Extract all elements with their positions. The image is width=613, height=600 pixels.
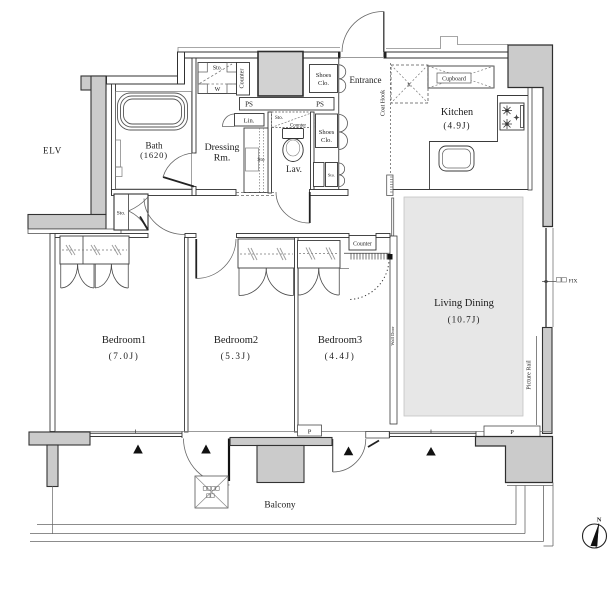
svg-text:Picture Rail: Picture Rail	[526, 360, 533, 390]
svg-text:P: P	[308, 429, 312, 436]
svg-text:(4.9J): (4.9J)	[443, 121, 470, 131]
svg-text:Lin.: Lin.	[244, 118, 255, 125]
svg-text:Coat Hook: Coat Hook	[381, 90, 387, 116]
svg-text:Wall Door: Wall Door	[390, 326, 395, 346]
svg-text:Bedroom2: Bedroom2	[214, 335, 258, 346]
svg-text:Sto: Sto	[257, 157, 264, 163]
svg-text:Cupboard: Cupboard	[442, 77, 466, 83]
svg-text:(1620): (1620)	[140, 150, 168, 160]
svg-text:Bedroom1: Bedroom1	[102, 335, 146, 346]
svg-text:W: W	[215, 87, 221, 93]
svg-text:Living Dining: Living Dining	[434, 298, 495, 309]
svg-text:Counter: Counter	[290, 124, 306, 129]
svg-text:Sto.: Sto.	[328, 173, 335, 178]
svg-text:Counter: Counter	[239, 69, 246, 89]
svg-text:Clo.: Clo.	[321, 137, 332, 144]
svg-text:Bedroom3: Bedroom3	[318, 335, 362, 346]
svg-text:N: N	[597, 517, 602, 524]
svg-text:Kitchen: Kitchen	[441, 107, 473, 118]
svg-text:PS: PS	[316, 101, 324, 109]
svg-text:Shoes: Shoes	[319, 129, 335, 136]
svg-text:Sto.: Sto.	[275, 116, 283, 121]
svg-text:Balcony: Balcony	[264, 501, 296, 511]
svg-text:Sto.: Sto.	[117, 211, 126, 217]
svg-text:Entrance: Entrance	[350, 75, 382, 85]
svg-text:ELV: ELV	[43, 146, 62, 156]
svg-text:(10.7J): (10.7J)	[448, 315, 481, 325]
svg-text:Rm.: Rm.	[214, 153, 231, 164]
svg-text:Sto.: Sto.	[213, 66, 223, 72]
svg-text:Counter: Counter	[353, 242, 372, 248]
svg-text:Bath: Bath	[146, 141, 163, 151]
svg-text:Lav.: Lav.	[286, 164, 302, 174]
svg-text:(7.0J): (7.0J)	[109, 351, 140, 361]
svg-text:PS: PS	[245, 101, 253, 109]
svg-text:P: P	[510, 429, 514, 436]
svg-text:(5.3J): (5.3J)	[221, 351, 252, 361]
svg-text:Shoes: Shoes	[316, 72, 332, 79]
svg-text:Dressing: Dressing	[205, 142, 240, 153]
svg-text:Clo.: Clo.	[318, 80, 329, 87]
svg-text:FIX: FIX	[569, 279, 578, 285]
svg-text:(4.4J): (4.4J)	[325, 351, 356, 361]
